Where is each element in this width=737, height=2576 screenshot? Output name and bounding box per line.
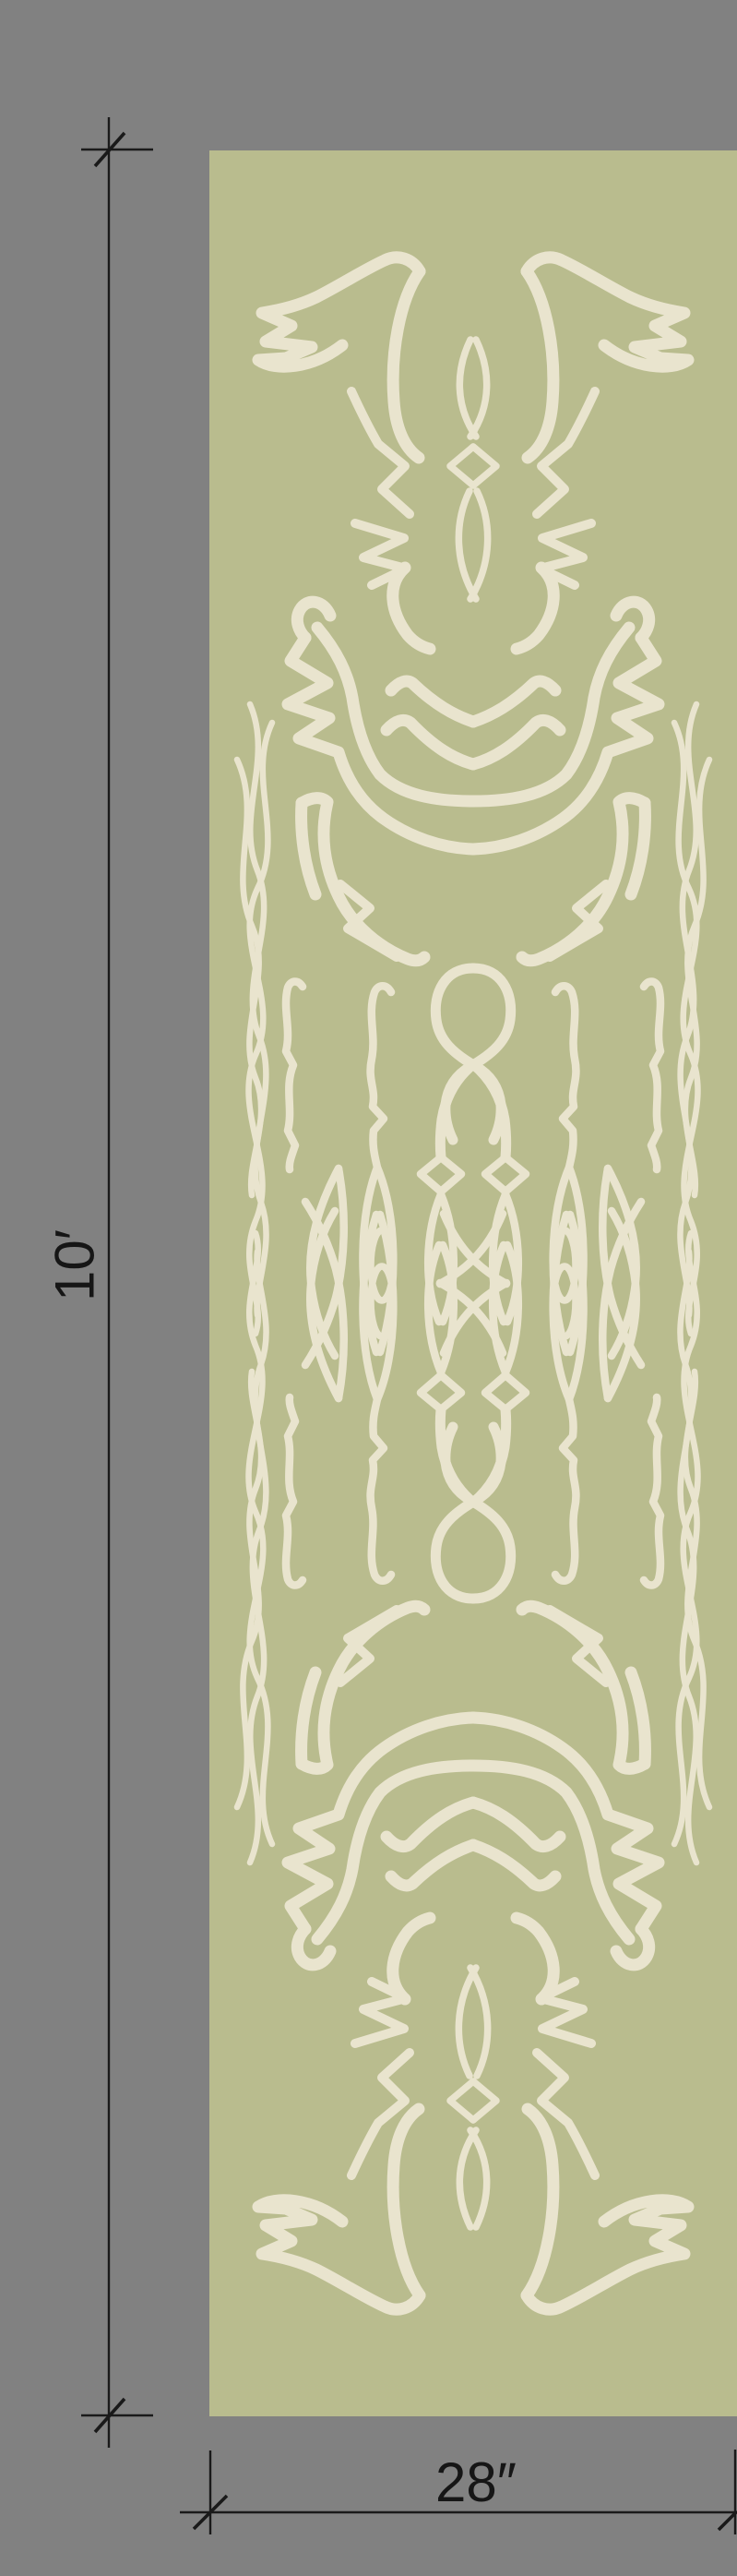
mockup-stage: 10′ 28″ xyxy=(0,0,737,2576)
wallpaper-panel xyxy=(209,150,737,2416)
height-dimension-label: 10′ xyxy=(44,1229,106,1301)
panel-fill xyxy=(209,150,737,2416)
panel-mockup-canvas: 10′ 28″ xyxy=(0,0,737,2576)
width-dimension-label: 28″ xyxy=(435,2451,517,2513)
